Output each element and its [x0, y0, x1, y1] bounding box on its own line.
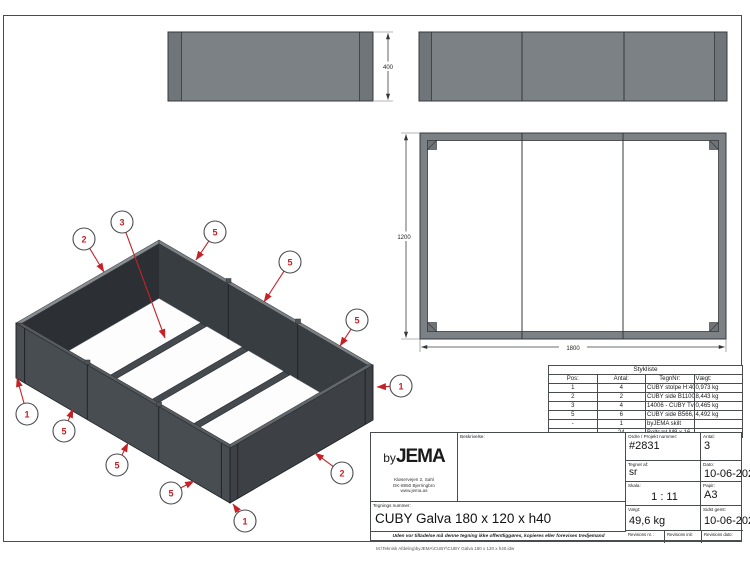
revision-date-label: Revisions dato:	[702, 531, 743, 537]
view-side-elevation: 400	[168, 32, 397, 101]
company-cell: byJEMA Kløservejen 2, Sahl DK-8850 Bjerr…	[371, 433, 458, 501]
parts-row: -1byJEMA skilt	[549, 420, 743, 429]
title-block: byJEMA Kløservejen 2, Sahl DK-8850 Bjerr…	[370, 432, 742, 541]
parts-row: 22CUBY side B1100 H4008,443 kg	[549, 393, 743, 402]
balloon-number: 2	[339, 468, 344, 478]
logo-by: by	[383, 451, 396, 465]
disclaimer-text: Uden vor tilladelse må denne tegning ikk…	[371, 531, 626, 542]
scale-value: 1 : 11	[626, 488, 700, 503]
balloon-number: 2	[81, 234, 86, 244]
balloon-number: 3	[119, 217, 124, 227]
balloon-leader	[68, 409, 73, 421]
balloon-leader	[196, 241, 209, 260]
date-value: 10-06-2021	[701, 467, 742, 480]
jema-logo: byJEMA	[371, 446, 457, 468]
parts-row: 56CUBY side B566,67 H400 Galva4,492 kg	[549, 411, 743, 420]
revision-date-cell: Revisions dato:	[702, 531, 743, 543]
parts-header-vaegt: Vægt:	[694, 375, 743, 384]
address-line: www.jema.as	[371, 488, 457, 494]
revision-init-cell: Revisions init:	[665, 531, 702, 543]
balloon-number: 5	[212, 227, 217, 237]
parts-rows: 14CUBY stolpe H:400 Galva0,973 kg22CUBY …	[549, 384, 743, 438]
balloon-number: 5	[61, 426, 66, 436]
drawing-number-value: CUBY Galva 180 x 120 x h40	[371, 508, 625, 526]
last-saved-value: 10-06-2021	[701, 512, 742, 527]
parts-row: 14CUBY stolpe H:400 Galva0,973 kg	[549, 384, 743, 393]
dim-400-label: 400	[383, 65, 394, 71]
revision-number-label: Revisions nr. :	[626, 531, 664, 537]
view-front-elevation	[419, 32, 727, 101]
view-plan: 1200 1800	[394, 133, 726, 352]
company-address: Kløservejen 2, Sahl DK-8850 Bjerringbro …	[371, 477, 457, 494]
parts-header-antal: Antal:	[597, 375, 646, 384]
balloon-leader	[340, 329, 351, 346]
parts-list: Stykliste Pos: Antal: TegnNr: Vægt: 14CU…	[548, 365, 743, 438]
date-cell: Dato: 10-06-2021	[701, 461, 742, 482]
drawing-sheet: 400	[0, 0, 750, 563]
logo-jema: JEMA	[396, 446, 445, 467]
weight-value: 49,6 kg	[626, 512, 700, 527]
order-number-cell: Ordre / Projekt nummer: #2831	[626, 433, 701, 461]
balloon-leader	[377, 386, 390, 387]
balloon-leader	[90, 248, 104, 272]
drawing-number-cell: Tegnings nummer: CUBY Galva 180 x 120 x …	[371, 501, 626, 531]
parts-header-tegnnr: TegnNr:	[646, 375, 695, 384]
description-cell: Beskrivelse:	[458, 433, 626, 501]
view-isometric: 235551555121	[16, 211, 412, 532]
balloon-leader	[315, 453, 333, 466]
dim-1800-label: 1800	[566, 346, 580, 352]
revision-number-cell: Revisions nr. :	[626, 531, 665, 543]
balloon-leader	[181, 481, 194, 488]
last-saved-cell: Sidst gemt: 10-06-2021	[701, 506, 742, 530]
parts-row: 3414006 - CUBY Tværstiver 1200 Galva0,46…	[549, 402, 743, 411]
balloon-number: 5	[287, 257, 292, 267]
balloon-number: 5	[168, 488, 173, 498]
balloon-leader	[264, 271, 284, 302]
balloon-number: 1	[24, 409, 29, 419]
description-label: Beskrivelse:	[458, 433, 625, 439]
weight-cell: Vægt: 49,6 kg	[626, 506, 701, 530]
parts-list-title: Stykliste	[549, 366, 743, 375]
balloon-number: 1	[242, 516, 247, 526]
drawn-by-value: sr	[626, 467, 700, 478]
order-number-value: #2831	[626, 439, 700, 452]
drawn-by-cell: Tegnet af: sr	[626, 461, 701, 482]
dim-1200-label: 1200	[397, 235, 411, 241]
quantity-value: 3	[701, 439, 742, 452]
paper-value: A3	[701, 488, 742, 501]
balloon-number: 1	[398, 381, 403, 391]
balloon-number: 5	[354, 315, 359, 325]
quantity-cell: Antal: 3	[701, 433, 742, 461]
paper-cell: Papir: A3	[701, 482, 742, 506]
revision-row: Revisions nr. : Revisions init: Revision…	[626, 530, 743, 542]
balloon-number: 5	[114, 460, 119, 470]
file-path-note: M:\Teknisk Afdeling\byJEMA\CUBY\CUBY Gal…	[376, 546, 514, 551]
balloon-leader	[233, 504, 239, 512]
scale-cell: Skala: 1 : 11	[626, 482, 701, 506]
parts-header-pos: Pos:	[549, 375, 598, 384]
revision-init-label: Revisions init:	[665, 531, 701, 537]
balloon-leader	[122, 443, 128, 455]
